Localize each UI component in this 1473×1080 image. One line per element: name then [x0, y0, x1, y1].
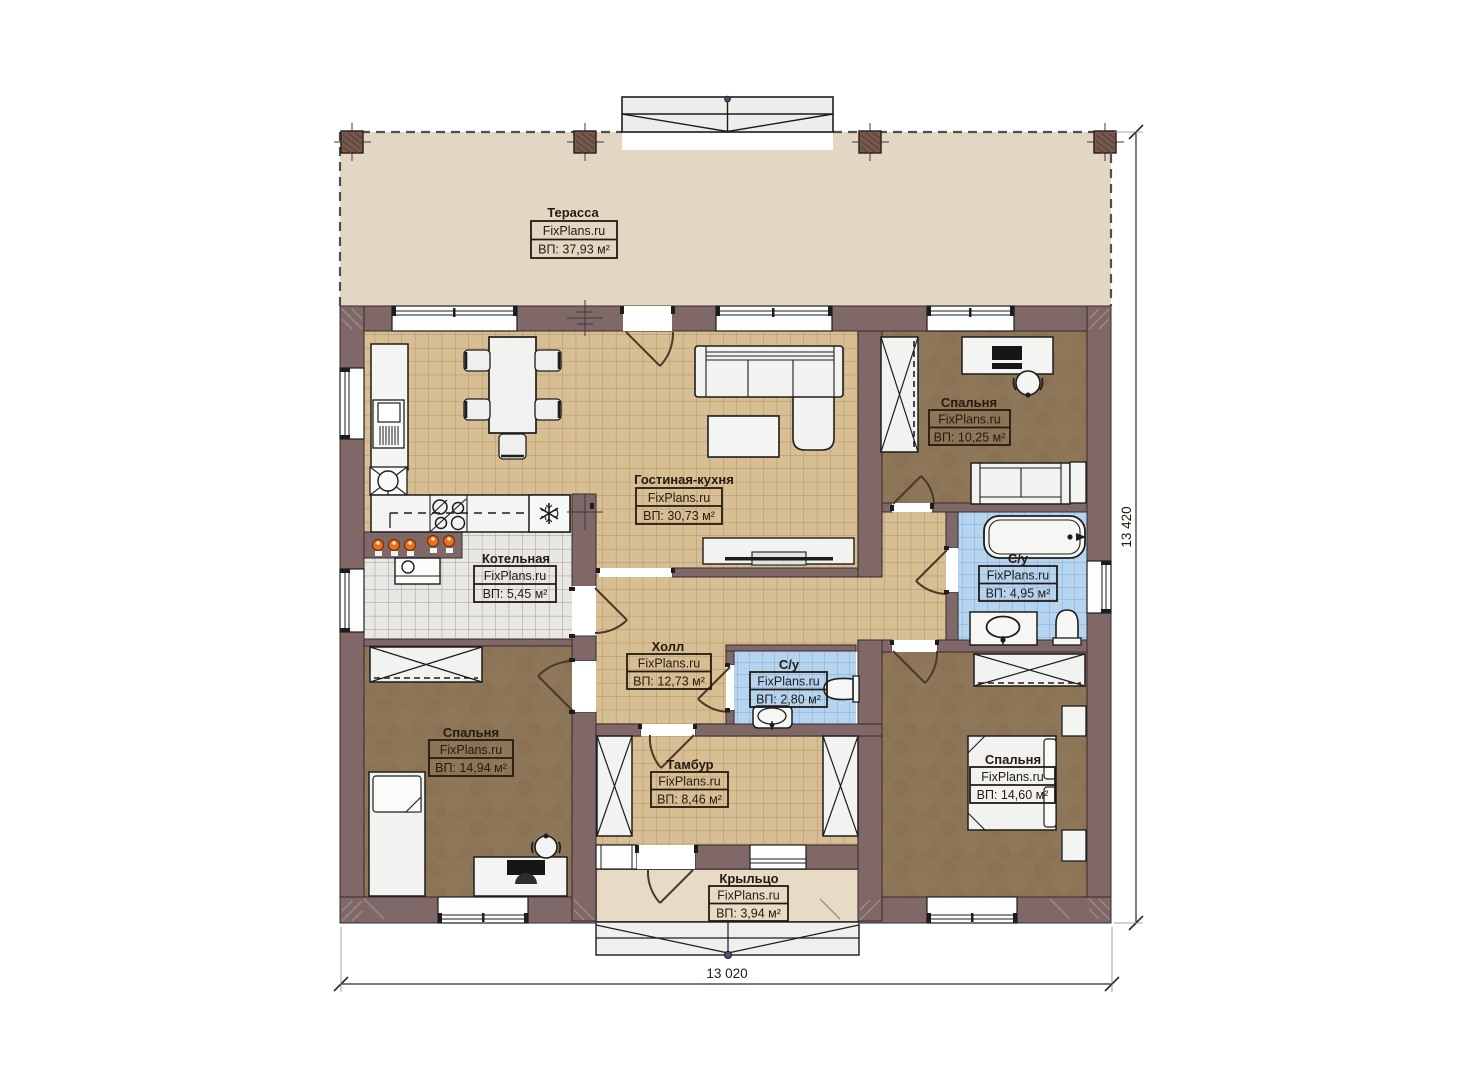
- svg-text:ВП: 5,45 м²: ВП: 5,45 м²: [483, 587, 548, 601]
- svg-text:ВП: 8,46 м²: ВП: 8,46 м²: [657, 793, 722, 807]
- svg-text:ВП: 30,73 м²: ВП: 30,73 м²: [643, 509, 715, 523]
- svg-text:С/у: С/у: [779, 657, 800, 672]
- svg-text:Тамбур: Тамбур: [666, 757, 713, 772]
- svg-text:Спальня: Спальня: [941, 395, 997, 410]
- svg-text:С/у: С/у: [1008, 551, 1029, 566]
- svg-text:ВП: 3,94 м²: ВП: 3,94 м²: [716, 907, 781, 921]
- svg-text:ВП: 4,95 м²: ВП: 4,95 м²: [986, 587, 1051, 601]
- svg-text:13 020: 13 020: [706, 966, 747, 981]
- svg-text:FixPlans.ru: FixPlans.ru: [638, 657, 701, 671]
- svg-text:FixPlans.ru: FixPlans.ru: [757, 675, 820, 689]
- svg-text:Спальня: Спальня: [985, 752, 1041, 767]
- svg-text:FixPlans.ru: FixPlans.ru: [981, 770, 1044, 784]
- svg-text:13 420: 13 420: [1119, 506, 1134, 547]
- svg-text:FixPlans.ru: FixPlans.ru: [484, 569, 547, 583]
- svg-text:Спальня: Спальня: [443, 725, 499, 740]
- svg-text:Котельная: Котельная: [482, 551, 550, 566]
- svg-text:ВП: 12,73 м²: ВП: 12,73 м²: [633, 675, 705, 689]
- svg-text:FixPlans.ru: FixPlans.ru: [938, 413, 1001, 427]
- svg-text:FixPlans.ru: FixPlans.ru: [440, 743, 503, 757]
- svg-text:Гостиная-кухня: Гостиная-кухня: [634, 472, 734, 487]
- svg-text:FixPlans.ru: FixPlans.ru: [658, 775, 721, 789]
- svg-text:FixPlans.ru: FixPlans.ru: [543, 224, 606, 238]
- svg-text:ВП: 2,80 м²: ВП: 2,80 м²: [756, 693, 821, 707]
- svg-text:ВП: 10,25 м²: ВП: 10,25 м²: [934, 431, 1006, 445]
- svg-text:ВП: 14,60 м²: ВП: 14,60 м²: [977, 788, 1049, 802]
- svg-text:Холл: Холл: [652, 639, 685, 654]
- svg-text:ВП: 14,94 м²: ВП: 14,94 м²: [435, 761, 507, 775]
- svg-text:FixPlans.ru: FixPlans.ru: [987, 569, 1050, 583]
- svg-text:FixPlans.ru: FixPlans.ru: [717, 889, 780, 903]
- svg-text:ВП: 37,93 м²: ВП: 37,93 м²: [538, 243, 610, 257]
- svg-text:Крыльцо: Крыльцо: [719, 871, 778, 886]
- svg-text:FixPlans.ru: FixPlans.ru: [648, 491, 711, 505]
- svg-text:Терасса: Терасса: [547, 205, 599, 220]
